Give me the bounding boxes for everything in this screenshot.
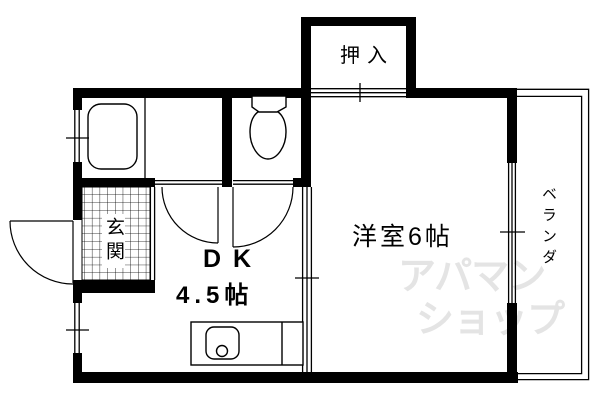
toilet-tank [252, 96, 286, 112]
left-window-upper [66, 110, 89, 162]
kitchen-counter [191, 322, 303, 365]
bathtub [88, 104, 137, 169]
entrance-label: 玄関 [102, 214, 125, 268]
dk-size-label: 4.5帖 [176, 284, 253, 308]
left-window-lower [66, 303, 89, 353]
right-window [500, 163, 525, 303]
closet-sliding-door [311, 83, 406, 102]
closet-label: 押入 [340, 46, 394, 66]
washroom-door-arc [162, 187, 218, 243]
floorplan-drawing [0, 0, 600, 400]
toilet-door-arc [233, 187, 293, 247]
western-room-label: 洋室6帖 [352, 225, 453, 250]
entrance-door-arc [10, 221, 73, 284]
toilet-bowl [250, 109, 286, 159]
dk-label: DK [203, 247, 263, 272]
floorplan-canvas: アパマン ショップ [0, 0, 600, 400]
genkan-step-edge [150, 187, 154, 280]
veranda-label: ベランダ [541, 186, 556, 270]
